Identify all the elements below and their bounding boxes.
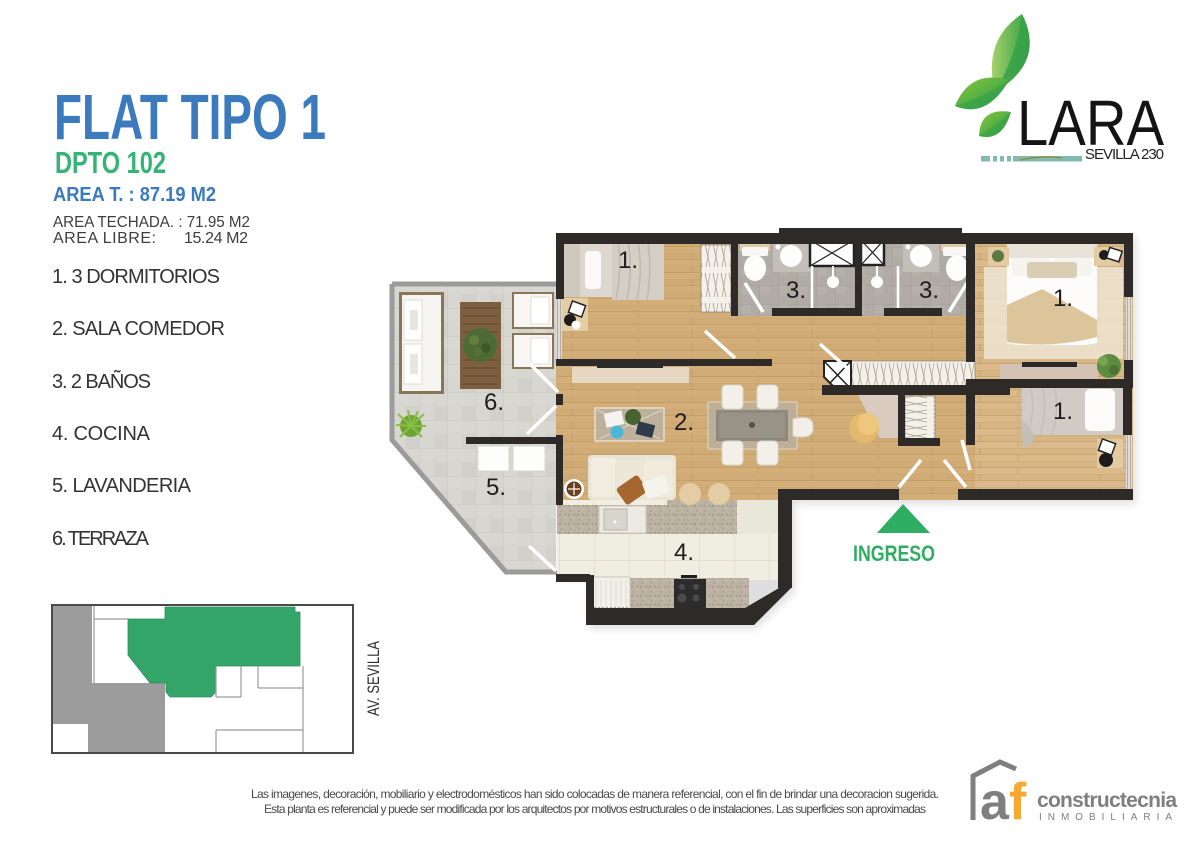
svg-text:AREA LIBRE:: AREA LIBRE:	[53, 230, 156, 247]
svg-text:f: f	[1009, 773, 1027, 831]
svg-text:6. TERRAZA: 6. TERRAZA	[52, 528, 150, 550]
svg-text:1.: 1.	[1053, 398, 1073, 425]
svg-text:AREA T. : 87.19 M2: AREA T. : 87.19 M2	[53, 184, 216, 206]
svg-text:INGRESO: INGRESO	[853, 541, 935, 566]
svg-text:3.: 3.	[919, 277, 939, 304]
svg-text:2.: 2.	[674, 409, 694, 436]
svg-text:15.24 M2: 15.24 M2	[184, 230, 248, 247]
svg-text:2. SALA COMEDOR: 2. SALA COMEDOR	[52, 318, 225, 340]
svg-text:3.: 3.	[786, 277, 806, 304]
svg-text:a: a	[980, 773, 1010, 831]
svg-text:constructecnia: constructecnia	[1037, 789, 1177, 812]
svg-text:AV. SEVILLA: AV. SEVILLA	[365, 641, 383, 716]
svg-text:4. COCINA: 4. COCINA	[52, 423, 151, 445]
svg-text:Esta planta es referencial y p: Esta planta es referencial y puede ser m…	[264, 802, 926, 816]
svg-text:1. 3 DORMITORIOS: 1. 3 DORMITORIOS	[52, 266, 220, 288]
svg-text:AREA TECHADA. : 71.95 M2: AREA TECHADA. : 71.95 M2	[53, 214, 250, 231]
svg-text:6.: 6.	[484, 389, 504, 416]
svg-text:5. LAVANDERIA: 5. LAVANDERIA	[52, 475, 192, 497]
svg-text:3. 2 BAÑOS: 3. 2 BAÑOS	[52, 369, 151, 393]
svg-text:5.: 5.	[486, 474, 506, 501]
svg-text:Las imagenes, decoración, mobi: Las imagenes, decoración, mobiliario y e…	[251, 787, 939, 801]
svg-text:DPTO 102: DPTO 102	[55, 145, 166, 180]
svg-text:1.: 1.	[1053, 285, 1073, 312]
svg-text:4.: 4.	[674, 539, 694, 566]
svg-text:FLAT TIPO 1: FLAT TIPO 1	[54, 81, 326, 153]
svg-text:1.: 1.	[618, 247, 638, 274]
svg-text:SEVILLA 230: SEVILLA 230	[1085, 146, 1164, 163]
